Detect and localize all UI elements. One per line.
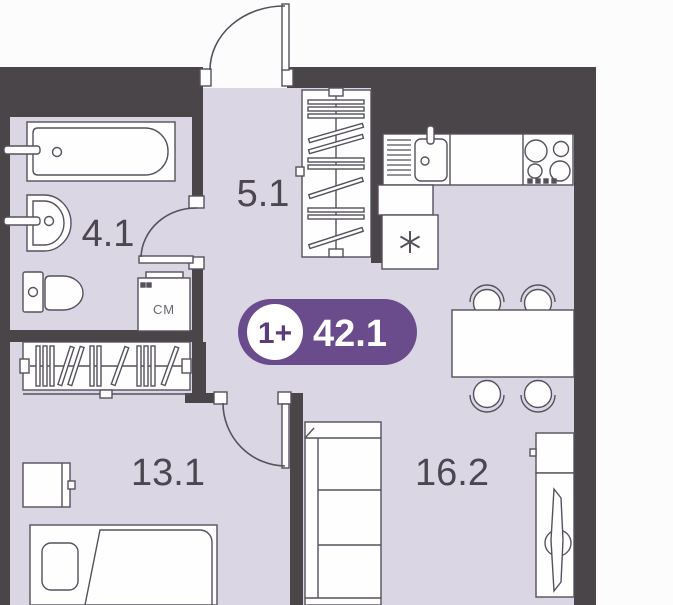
bathtub-tap-icon	[4, 146, 40, 154]
washing-machine-label: СМ	[153, 302, 175, 317]
wall-left	[0, 117, 10, 605]
wall-bathroom-right-lower	[192, 268, 203, 330]
tv-screen-icon	[551, 489, 563, 591]
hallway-closet	[296, 88, 371, 257]
wall-wardrobe-right	[192, 342, 206, 393]
bathtub-drain-icon	[53, 148, 62, 157]
sofa	[305, 422, 381, 605]
bathtub	[4, 122, 175, 181]
cabinet-handle-icon	[530, 449, 536, 456]
bed	[30, 525, 217, 605]
wall-bathroom-right-upper	[192, 117, 203, 197]
wall-top-right	[287, 67, 596, 88]
wall-kitchen-block	[383, 88, 596, 135]
kitchen-drain-icon	[421, 157, 429, 165]
kitchen-lower-cabinet	[378, 185, 433, 215]
bed-pillow	[42, 543, 78, 590]
kitchen-tap-icon	[427, 126, 434, 144]
badge-rooms-count: 1+	[258, 317, 292, 350]
wall-bathroom-bottom	[10, 330, 203, 342]
badge-total-area: 42.1	[313, 313, 387, 355]
entrance-door	[200, 4, 293, 86]
wall-right	[574, 135, 596, 605]
sink-tap-icon	[4, 217, 40, 225]
wall-bedroom-living-divider	[290, 393, 303, 605]
kitchen-counter	[383, 126, 573, 185]
room-label-bathroom: 4.1	[82, 213, 135, 255]
room-label-bedroom: 13.1	[131, 452, 205, 494]
refrigerator	[382, 215, 438, 269]
bed-blanket	[85, 530, 212, 605]
wall-top-left-block	[0, 67, 203, 117]
sink-drain-icon	[45, 217, 54, 226]
bedroom-wardrobe	[20, 342, 191, 398]
floorplan-canvas: 4.1 5.1 13.1 16.2 СМ 1+ 42.1	[0, 0, 673, 605]
room-label-hallway: 5.1	[237, 173, 290, 215]
dining-table	[452, 310, 574, 377]
bedroom-desk	[23, 463, 75, 507]
wall-closet-kitchen-divider	[371, 88, 383, 263]
floorplan-svg: 4.1 5.1 13.1 16.2 СМ 1+ 42.1	[0, 0, 673, 605]
room-label-living-kitchen: 16.2	[415, 452, 489, 494]
apartment-badge: 1+ 42.1	[238, 299, 417, 365]
tv-unit	[530, 433, 574, 597]
toilet	[23, 272, 83, 312]
